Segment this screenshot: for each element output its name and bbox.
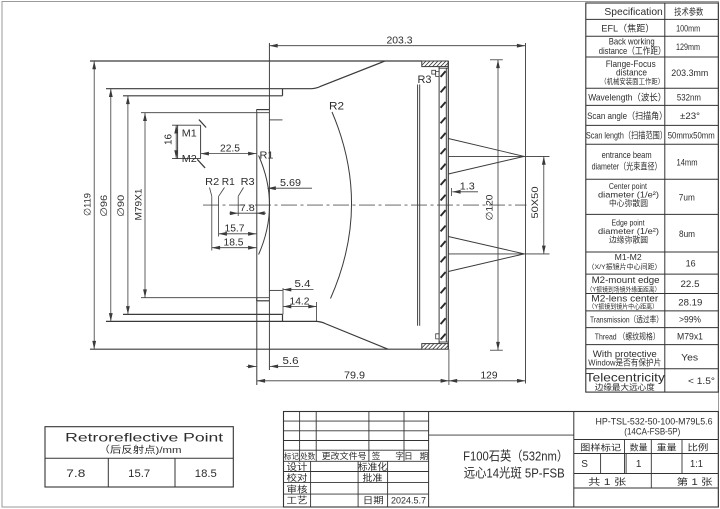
svg-text:M79X1: M79X1 bbox=[133, 189, 144, 221]
svg-text:1:1: 1:1 bbox=[690, 459, 703, 470]
svg-text:5.6: 5.6 bbox=[283, 356, 299, 367]
svg-text:±23°: ±23° bbox=[680, 111, 700, 122]
svg-text:Scan length（扫描范围）: Scan length（扫描范围） bbox=[586, 129, 667, 140]
svg-text:审核: 审核 bbox=[287, 483, 308, 494]
svg-text:18.5: 18.5 bbox=[224, 237, 244, 248]
svg-text:>99%: >99% bbox=[679, 314, 701, 325]
svg-text:F100石英（532nm）: F100石英（532nm） bbox=[463, 448, 568, 463]
svg-text:7um: 7um bbox=[679, 192, 695, 203]
svg-text:R1: R1 bbox=[260, 149, 274, 161]
svg-text:日期: 日期 bbox=[363, 496, 384, 506]
svg-text:∅90: ∅90 bbox=[116, 195, 127, 217]
svg-text:Window是否有保护片: Window是否有保护片 bbox=[588, 357, 661, 367]
svg-text:（Y振镜到镜片中心距离）: （Y振镜到镜片中心距离） bbox=[588, 302, 658, 311]
svg-text:（后反射点)/mm: （后反射点)/mm bbox=[99, 444, 182, 456]
svg-text:8um: 8um bbox=[679, 229, 695, 240]
svg-text:标准化: 标准化 bbox=[358, 461, 387, 472]
svg-text:远心14光斑 5P-FSB: 远心14光斑 5P-FSB bbox=[464, 465, 565, 480]
svg-text:50mmx50mm: 50mmx50mm bbox=[668, 130, 715, 140]
svg-text:15.7: 15.7 bbox=[225, 223, 245, 234]
svg-text:重量: 重量 bbox=[657, 442, 677, 453]
svg-text:2024.5.7: 2024.5.7 bbox=[391, 496, 426, 506]
svg-text:18.5: 18.5 bbox=[195, 468, 217, 480]
svg-text:22.5: 22.5 bbox=[681, 279, 700, 290]
svg-text:第 1 张: 第 1 张 bbox=[677, 476, 713, 487]
svg-text:M79x1: M79x1 bbox=[677, 332, 703, 343]
svg-text:边缘弥散圆: 边缘弥散圆 bbox=[609, 234, 648, 244]
svg-text:diameter（光束直径）: diameter（光束直径） bbox=[592, 160, 662, 171]
svg-text:Scan angle（扫描角）: Scan angle（扫描角） bbox=[587, 110, 667, 121]
svg-text:diameter (1/e²): diameter (1/e²) bbox=[598, 190, 659, 200]
svg-text:S: S bbox=[581, 459, 588, 470]
svg-text:处数: 处数 bbox=[300, 451, 315, 461]
svg-text:100mm: 100mm bbox=[676, 24, 700, 35]
svg-text:更改文件号: 更改文件号 bbox=[322, 450, 367, 461]
svg-text:1: 1 bbox=[636, 459, 642, 470]
svg-text:标记: 标记 bbox=[284, 451, 299, 461]
svg-text:Retroreflective Point: Retroreflective Point bbox=[65, 431, 224, 445]
svg-text:工艺: 工艺 bbox=[287, 496, 308, 506]
svg-text:M2: M2 bbox=[182, 153, 197, 165]
svg-text:边缘最大远心度: 边缘最大远心度 bbox=[595, 382, 655, 392]
svg-text:签: 签 bbox=[372, 450, 381, 461]
svg-text:共 1 张: 共 1 张 bbox=[588, 477, 626, 487]
svg-text:∅96: ∅96 bbox=[99, 195, 110, 217]
svg-text:M2-mount edge: M2-mount edge bbox=[592, 275, 660, 285]
svg-text:字: 字 bbox=[395, 450, 404, 461]
svg-text:EFL（焦距）: EFL（焦距） bbox=[601, 23, 654, 34]
svg-text:Yes: Yes bbox=[681, 352, 698, 363]
svg-text:22.5: 22.5 bbox=[220, 144, 240, 155]
svg-text:（X/Y振镜片中心间距）: （X/Y振镜片中心间距） bbox=[588, 262, 662, 271]
svg-text:R2: R2 bbox=[205, 176, 219, 188]
svg-text:7.8: 7.8 bbox=[240, 203, 255, 214]
svg-text:∅120: ∅120 bbox=[484, 195, 495, 221]
svg-text:R3: R3 bbox=[241, 176, 255, 188]
svg-text:203.3: 203.3 bbox=[387, 36, 413, 47]
svg-text:批准: 批准 bbox=[363, 472, 383, 483]
svg-text:R1: R1 bbox=[222, 176, 235, 188]
svg-text:14mm: 14mm bbox=[677, 157, 698, 168]
svg-text:50X50: 50X50 bbox=[530, 187, 541, 219]
svg-text:distance（工作距）: distance（工作距） bbox=[599, 45, 666, 56]
svg-text:图样标记: 图样标记 bbox=[580, 442, 621, 453]
svg-text:diameter (1/e²): diameter (1/e²) bbox=[598, 226, 659, 236]
svg-text:比例: 比例 bbox=[687, 442, 708, 453]
svg-text:532nm: 532nm bbox=[677, 92, 701, 103]
svg-text:Specification: Specification bbox=[604, 6, 663, 18]
svg-text:日: 日 bbox=[404, 451, 413, 461]
svg-text:14.2: 14.2 bbox=[290, 296, 310, 307]
svg-text:期: 期 bbox=[420, 451, 429, 461]
svg-text:129: 129 bbox=[481, 370, 498, 381]
svg-text:∅119: ∅119 bbox=[83, 193, 94, 216]
svg-text:< 1.5°: < 1.5° bbox=[688, 376, 715, 387]
svg-text:R2: R2 bbox=[329, 100, 344, 112]
svg-text:Thread （螺纹规格）: Thread （螺纹规格） bbox=[595, 331, 660, 342]
svg-text:distance: distance bbox=[616, 67, 647, 77]
svg-text:技术参数: 技术参数 bbox=[674, 6, 703, 17]
svg-text:1.3: 1.3 bbox=[460, 181, 475, 192]
svg-text:5.4: 5.4 bbox=[295, 279, 311, 290]
svg-text:16: 16 bbox=[163, 134, 174, 145]
svg-text:Transmission（透过率）: Transmission（透过率） bbox=[590, 313, 663, 324]
svg-text:（Y振镜到场镜外缘面距离）: （Y振镜到场镜外缘面距离） bbox=[587, 284, 661, 293]
svg-text:entrance beam: entrance beam bbox=[602, 150, 652, 160]
svg-text:校对: 校对 bbox=[287, 472, 308, 483]
svg-text:15.7: 15.7 bbox=[128, 468, 150, 480]
svg-text:M1: M1 bbox=[182, 127, 197, 139]
svg-text:(14CA-FSB-5P): (14CA-FSB-5P) bbox=[624, 427, 680, 437]
svg-text:数量: 数量 bbox=[630, 442, 648, 453]
svg-text:16: 16 bbox=[686, 259, 696, 270]
svg-text:M1-M2: M1-M2 bbox=[615, 252, 642, 262]
svg-text:（机械安装面工作距）: （机械安装面工作距） bbox=[600, 77, 664, 86]
svg-text:203.3mm: 203.3mm bbox=[671, 68, 708, 79]
svg-text:M2-lens center: M2-lens center bbox=[591, 293, 658, 303]
svg-text:28.19: 28.19 bbox=[678, 298, 702, 309]
svg-text:HP-TSL-532-50-100-M79L5.6: HP-TSL-532-50-100-M79L5.6 bbox=[596, 416, 713, 426]
svg-text:设计: 设计 bbox=[287, 461, 308, 472]
svg-text:79.9: 79.9 bbox=[344, 370, 365, 381]
svg-text:R3: R3 bbox=[418, 74, 432, 86]
svg-text:5.69: 5.69 bbox=[280, 178, 301, 189]
svg-text:中心弥散圆: 中心弥散圆 bbox=[609, 198, 648, 208]
svg-text:Wavelength（波长）: Wavelength（波长） bbox=[588, 91, 666, 102]
svg-text:129mm: 129mm bbox=[676, 42, 700, 53]
svg-text:7.8: 7.8 bbox=[66, 468, 85, 480]
